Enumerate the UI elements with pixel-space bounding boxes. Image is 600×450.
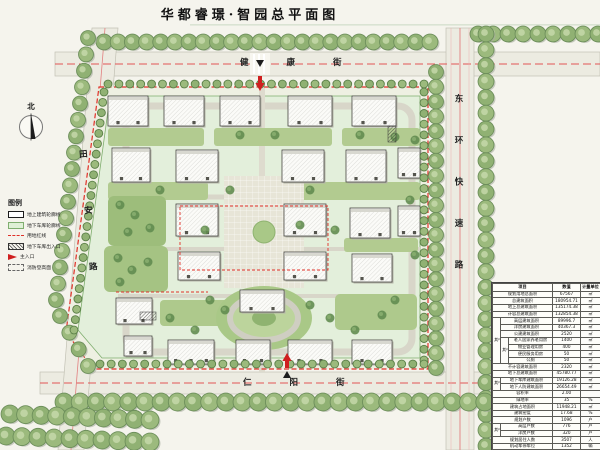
shrub <box>104 80 113 89</box>
table-cell: 其中 <box>493 423 501 436</box>
shrub <box>125 80 134 89</box>
building <box>284 204 328 238</box>
building <box>112 148 152 184</box>
table-cell: % <box>581 397 600 404</box>
legend-item: 地下车库轮廓线 <box>8 222 94 229</box>
building <box>288 96 334 128</box>
table-row: 洋房户数320户 <box>493 430 600 437</box>
table-cell: ㎡ <box>581 324 600 331</box>
building <box>398 206 422 238</box>
table-cell: 2320 <box>553 364 581 371</box>
table-cell: 洋房户数 <box>501 430 553 437</box>
table-cell: 辆 <box>581 443 600 450</box>
shrub <box>274 360 283 369</box>
legend-items: 地上建筑轮廓线地下车库轮廓线用地红线地下车库出入口主入口消防登高面 <box>8 211 94 271</box>
table-cell: 50 <box>553 357 581 364</box>
shrub <box>420 238 429 247</box>
courtyard-tree <box>236 131 245 140</box>
table-cell: 机动车停车位 <box>493 443 553 450</box>
shrub <box>420 313 429 322</box>
building <box>350 208 392 240</box>
street-name-east: 东环快速路 <box>452 94 464 302</box>
fire-area-icon <box>8 264 24 271</box>
shrub <box>71 315 80 324</box>
building <box>164 96 206 128</box>
table-cell: 其中 <box>501 338 509 364</box>
shrub <box>343 80 352 89</box>
shrub <box>223 80 232 89</box>
table-cell: 132854.38 <box>553 311 581 318</box>
building <box>284 252 328 282</box>
table-cell: 2.00 <box>553 390 581 397</box>
table-cell: 地上总建筑面积 <box>493 305 553 312</box>
page-title: 华都睿璟·智园总平面图 <box>130 4 370 23</box>
courtyard-tree <box>144 258 153 267</box>
table-cell: 其中 <box>493 377 501 390</box>
shrub <box>107 360 116 369</box>
table-cell: 计容总建筑面积 <box>493 311 553 318</box>
shrub <box>267 80 276 89</box>
shrub <box>98 98 107 107</box>
table-cell: 规划用地总面积 <box>493 291 553 298</box>
building <box>178 252 222 282</box>
table-cell: 3507 <box>553 437 581 444</box>
shrub <box>213 80 222 89</box>
table-cell: 1352 <box>553 443 581 450</box>
table-cell: 户 <box>581 430 600 437</box>
shrub <box>151 360 160 369</box>
shrub <box>76 274 85 283</box>
shrub <box>94 129 103 138</box>
table-cell: 180954.71 <box>553 298 581 305</box>
table-cell: 地下车库建筑面积 <box>501 377 553 384</box>
shrub <box>365 80 374 89</box>
shrub <box>185 360 194 369</box>
shrub <box>332 80 341 89</box>
table-row: 容积率2.00 <box>493 390 600 397</box>
shrub <box>263 360 272 369</box>
shrub <box>96 360 105 369</box>
legend-item: 地下车库出入口 <box>8 243 94 250</box>
shrub <box>70 326 79 335</box>
table-cell: 洋房建筑面积 <box>501 324 553 331</box>
shrub <box>386 360 395 369</box>
shrub <box>420 248 429 257</box>
courtyard-tree <box>201 226 210 235</box>
table-row: 其中高层建筑面积89996.7㎡ <box>493 318 600 325</box>
table-cell: 高层建筑面积 <box>501 318 553 325</box>
table-cell: % <box>581 410 600 417</box>
legend-item: 主入口 <box>8 253 94 260</box>
shrub <box>297 360 306 369</box>
table-cell: 320 <box>553 430 581 437</box>
building <box>220 96 262 128</box>
table-row: 地下人防建筑面积26654.49㎡ <box>493 384 600 391</box>
shrub <box>234 80 243 89</box>
shrub <box>207 360 216 369</box>
table-cell: ㎡ <box>581 305 600 312</box>
table-cell: 19126.28 <box>553 377 581 384</box>
legend-item: 消防登高面 <box>8 264 94 271</box>
shrub <box>289 80 298 89</box>
courtyard-tree <box>116 278 125 287</box>
street-name-north: 健康街 <box>240 56 380 68</box>
shrub <box>191 80 200 89</box>
table-cell: ㎡ <box>581 357 600 364</box>
courtyard-tree <box>391 296 400 305</box>
shrub <box>129 360 138 369</box>
building <box>240 290 286 314</box>
building <box>124 336 154 358</box>
building <box>352 254 394 284</box>
shrub <box>118 360 127 369</box>
table-row: 绿地率35% <box>493 397 600 404</box>
table-row: 规划户数1096户 <box>493 417 600 424</box>
north-arrow-label: 北 <box>27 101 35 111</box>
shrub <box>72 305 81 314</box>
shrub <box>420 216 429 225</box>
table-cell: 公建建筑面积 <box>501 331 553 338</box>
table-row: 建筑占地面积11948.21㎡ <box>493 404 600 411</box>
courtyard-tree <box>406 196 415 205</box>
shrub <box>92 150 101 159</box>
table-cell: 2520 <box>553 331 581 338</box>
shrub <box>311 80 320 89</box>
garage-outline-icon <box>8 222 24 229</box>
shrub <box>158 80 167 89</box>
shrub <box>353 360 362 369</box>
shrub <box>196 360 205 369</box>
table-cell: 776 <box>553 423 581 430</box>
garage-entrance-icon <box>8 243 24 250</box>
courtyard-tree <box>206 296 215 305</box>
shrub <box>420 323 429 332</box>
table-row: 洋房建筑面积40367.3㎡ <box>493 324 600 331</box>
courtyard-tree <box>166 314 175 323</box>
main-entrance-icon <box>8 254 17 260</box>
building <box>108 96 150 128</box>
shrub <box>420 98 429 107</box>
table-cell: 公厕 <box>509 357 553 364</box>
shrub <box>278 80 287 89</box>
legend-item-label: 主入口 <box>20 253 34 260</box>
building <box>346 150 388 184</box>
table-cell: ㎡ <box>581 298 600 305</box>
shrub <box>169 80 178 89</box>
courtyard-tree <box>128 266 137 275</box>
shrub <box>136 80 145 89</box>
legend-item-label: 地上建筑轮廓线 <box>27 211 61 218</box>
legend-item-label: 地下车库出入口 <box>27 243 61 250</box>
table-cell: 40367.3 <box>553 324 581 331</box>
table-row: 公建建筑面积2520㎡ <box>493 331 600 338</box>
table-cell: 26654.49 <box>553 384 581 391</box>
indicator-table: 项目数值计量单位规划用地总面积67567㎡总建筑面积180954.71㎡地上总建… <box>491 282 600 450</box>
table-cell: 地下人防建筑面积 <box>501 384 553 391</box>
shrub <box>202 80 211 89</box>
shrub <box>420 152 429 161</box>
garage-entrance-hatch <box>388 126 396 142</box>
table-row: 机动车停车位1352辆 <box>493 443 600 450</box>
table-row: 其中高层户数776户 <box>493 423 600 430</box>
shrub <box>75 284 84 293</box>
table-cell: 89996.7 <box>553 318 581 325</box>
shrub <box>420 195 429 204</box>
courtyard-tree <box>331 226 340 235</box>
table-cell: 135174.38 <box>553 305 581 312</box>
table-cell: 1096 <box>553 417 581 424</box>
shrub <box>420 141 429 150</box>
building <box>176 150 220 184</box>
shrub <box>180 80 189 89</box>
shrub <box>420 345 429 354</box>
table-row: 公厕50㎡ <box>493 357 600 364</box>
shrub <box>245 80 254 89</box>
table-cell: 规划居住人数 <box>493 437 553 444</box>
table-cell: 户 <box>581 423 600 430</box>
shrub <box>420 109 429 118</box>
shrub <box>420 227 429 236</box>
table-row: 其中地下车库建筑面积19126.28㎡ <box>493 377 600 384</box>
courtyard-tree <box>351 326 360 335</box>
courtyard-tree <box>306 186 315 195</box>
building <box>282 150 326 184</box>
courtyard-tree <box>146 224 155 233</box>
table-cell: 人 <box>581 437 600 444</box>
legend-item-label: 用地红线 <box>27 232 46 239</box>
shrub <box>408 360 417 369</box>
table-cell: 物业管理用房 <box>509 344 553 351</box>
legend-item: 地上建筑轮廓线 <box>8 211 94 218</box>
shrub <box>420 270 429 279</box>
table-row: 物业管理用房400㎡ <box>493 344 600 351</box>
table-row: 其中老人居家养老用房1400㎡ <box>493 338 600 345</box>
legend: 图例 地上建筑轮廓线地下车库轮廓线用地红线地下车库出入口主入口消防登高面 <box>8 198 94 274</box>
shrub <box>420 206 429 215</box>
shrub <box>354 80 363 89</box>
legend-item-label: 消防登高面 <box>27 264 51 271</box>
table-cell: 11948.21 <box>553 404 581 411</box>
courtyard-tree <box>116 201 125 210</box>
shrub <box>230 360 239 369</box>
courtyard-tree <box>226 186 235 195</box>
table-row: 规划居住人数3507人 <box>493 437 600 444</box>
table-row: 建筑密度17.68% <box>493 410 600 417</box>
street-name-south: 仁阳街 <box>243 376 383 388</box>
courtyard-tree <box>326 314 335 323</box>
courtyard-tree <box>124 228 133 237</box>
shrub <box>140 360 149 369</box>
legend-title: 图例 <box>8 198 94 208</box>
shrub <box>420 281 429 290</box>
table-cell: ㎡ <box>581 404 600 411</box>
courtyard-tree <box>356 131 365 140</box>
table-row: 不计容建筑面积2320㎡ <box>493 364 600 371</box>
table-cell: ㎡ <box>581 344 600 351</box>
table-cell: 户 <box>581 417 600 424</box>
legend-item-label: 地下车库轮廓线 <box>27 222 61 229</box>
shrub <box>147 80 156 89</box>
table-row: 计容总建筑面积132854.38㎡ <box>493 311 600 318</box>
table-cell: 规划户数 <box>493 417 553 424</box>
shrub <box>114 80 123 89</box>
table-cell: ㎡ <box>581 377 600 384</box>
courtyard-tree <box>221 306 230 315</box>
table-cell: ㎡ <box>581 318 600 325</box>
courtyard-tree <box>191 326 200 335</box>
table-cell: ㎡ <box>581 384 600 391</box>
shrub <box>308 360 317 369</box>
table-cell: 建筑密度 <box>493 410 553 417</box>
shrub <box>96 119 105 128</box>
courtyard-tree <box>411 251 420 260</box>
courtyard-tree <box>131 211 140 220</box>
shrub <box>218 360 227 369</box>
shrub <box>100 88 109 97</box>
shrub <box>387 80 396 89</box>
shrub <box>375 360 384 369</box>
table-cell: 高层户数 <box>501 423 553 430</box>
shrub <box>420 291 429 300</box>
shrub <box>420 334 429 343</box>
shrub <box>398 80 407 89</box>
table-cell: 总建筑面积 <box>493 298 553 305</box>
table-cell: 数值 <box>553 284 581 292</box>
table-cell: ㎡ <box>581 311 600 318</box>
table-cell: 建筑占地面积 <box>493 404 553 411</box>
table-row: 总建筑面积180954.71㎡ <box>493 298 600 305</box>
shrub <box>420 173 429 182</box>
table-cell: ㎡ <box>581 371 600 378</box>
courtyard-tree <box>296 221 305 230</box>
shrub <box>300 80 309 89</box>
table-cell <box>581 390 600 397</box>
table-cell: 其中 <box>493 318 501 364</box>
table-cell: 不计容建筑面积 <box>493 364 553 371</box>
shrub <box>420 130 429 139</box>
courtyard-tree <box>306 301 315 310</box>
site-plan-sheet: 北 华都睿璟·智园总平面图 健康街 仁阳街 田安路 东环快速路 图例 地上建筑轮… <box>0 0 600 450</box>
shrub <box>330 360 339 369</box>
table-cell: 地下总建筑面积 <box>493 371 553 378</box>
table-cell: 400 <box>553 344 581 351</box>
shrub <box>376 80 385 89</box>
table-cell: 绿地率 <box>493 397 553 404</box>
shrub <box>420 184 429 193</box>
legend-item: 用地红线 <box>8 232 94 239</box>
shrub <box>252 360 261 369</box>
red-line-icon <box>8 235 24 236</box>
table-row: 便民服务用房50㎡ <box>493 351 600 358</box>
shrub <box>241 360 250 369</box>
shrub <box>341 360 350 369</box>
table-cell: ㎡ <box>581 331 600 338</box>
shrub <box>364 360 373 369</box>
building <box>176 204 220 238</box>
shrub <box>163 360 172 369</box>
shrub <box>420 80 429 89</box>
courtyard-tree <box>271 131 280 140</box>
table-cell: 1400 <box>553 338 581 345</box>
courtyard-tree <box>411 136 420 145</box>
table-cell: 45780.77 <box>553 371 581 378</box>
table-cell: 35 <box>553 397 581 404</box>
shrub <box>174 360 183 369</box>
shrub <box>420 360 429 369</box>
shrub <box>97 108 106 117</box>
shrub <box>420 88 429 97</box>
shrub <box>74 295 83 304</box>
shrub <box>420 163 429 172</box>
shrub <box>409 80 418 89</box>
shrub <box>420 302 429 311</box>
table-cell: 67567 <box>553 291 581 298</box>
shrub <box>420 120 429 129</box>
table-cell: 容积率 <box>493 390 553 397</box>
table-cell: ㎡ <box>581 338 600 345</box>
garage-entrance-hatch <box>140 312 156 320</box>
building <box>352 96 398 128</box>
courtyard-tree <box>378 311 387 320</box>
shrub <box>319 360 328 369</box>
courtyard-tree <box>114 254 123 263</box>
table-row: 地上总建筑面积135174.38㎡ <box>493 305 600 312</box>
table-cell: 50 <box>553 351 581 358</box>
table-cell: ㎡ <box>581 351 600 358</box>
table-cell: 计量单位 <box>581 284 600 292</box>
title-divider <box>190 24 600 26</box>
table-cell: 便民服务用房 <box>509 351 553 358</box>
table-row: 规划用地总面积67567㎡ <box>493 291 600 298</box>
table-cell: 项目 <box>493 284 553 292</box>
shrub <box>322 80 331 89</box>
table-cell: 17.68 <box>553 410 581 417</box>
table-cell: 老人居家养老用房 <box>509 338 553 345</box>
shrub <box>93 139 102 148</box>
table-row: 地下总建筑面积45780.77㎡ <box>493 371 600 378</box>
courtyard-tree <box>156 186 165 195</box>
building <box>398 148 422 180</box>
building-outline-icon <box>8 211 24 218</box>
table-cell: ㎡ <box>581 291 600 298</box>
shrub <box>397 360 406 369</box>
shrub <box>90 160 99 169</box>
shrub <box>420 259 429 268</box>
table-cell: ㎡ <box>581 364 600 371</box>
